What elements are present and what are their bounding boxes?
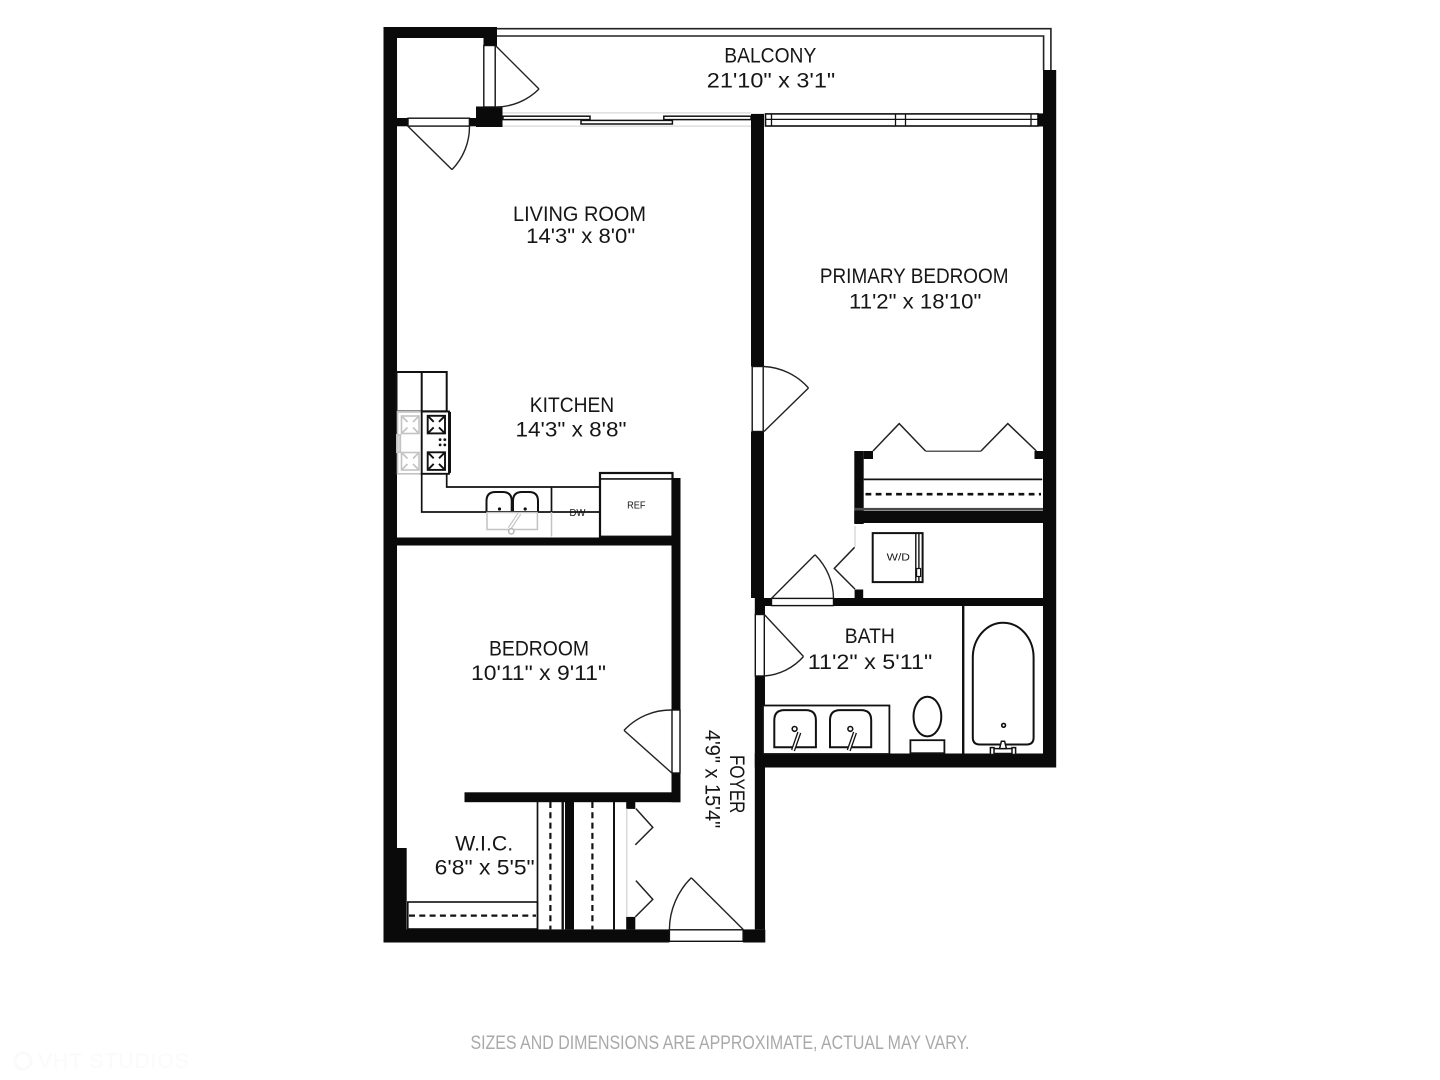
svg-text:W.I.C.: W.I.C. [455,833,513,856]
svg-text:BATH: BATH [845,625,895,648]
svg-text:BEDROOM: BEDROOM [489,637,589,660]
svg-text:11'2" x 18'10": 11'2" x 18'10" [849,291,981,314]
svg-text:W/D: W/D [887,552,911,564]
svg-text:LIVING ROOM: LIVING ROOM [513,203,646,226]
svg-text:VHT STUDIOS: VHT STUDIOS [38,1050,190,1073]
svg-text:6'8" x 5'5": 6'8" x 5'5" [435,857,535,880]
svg-text:DW: DW [570,507,586,519]
svg-text:14'3" x 8'0": 14'3" x 8'0" [526,225,635,248]
svg-text:FOYER: FOYER [725,755,748,813]
svg-text:11'2" x 5'11": 11'2" x 5'11" [808,651,933,674]
svg-text:21'10" x 3'1": 21'10" x 3'1" [707,69,835,92]
svg-text:14'3" x 8'8": 14'3" x 8'8" [516,419,627,442]
svg-text:KITCHEN: KITCHEN [530,394,614,417]
svg-text:4'9" x 15'4": 4'9" x 15'4" [700,730,723,828]
svg-text:10'11" x 9'11": 10'11" x 9'11" [471,662,606,685]
svg-text:PRIMARY BEDROOM: PRIMARY BEDROOM [820,265,1009,288]
svg-text:SIZES AND DIMENSIONS ARE APPRO: SIZES AND DIMENSIONS ARE APPROXIMATE, AC… [471,1033,970,1054]
svg-text:BALCONY: BALCONY [724,45,816,68]
svg-text:REF: REF [627,500,645,512]
